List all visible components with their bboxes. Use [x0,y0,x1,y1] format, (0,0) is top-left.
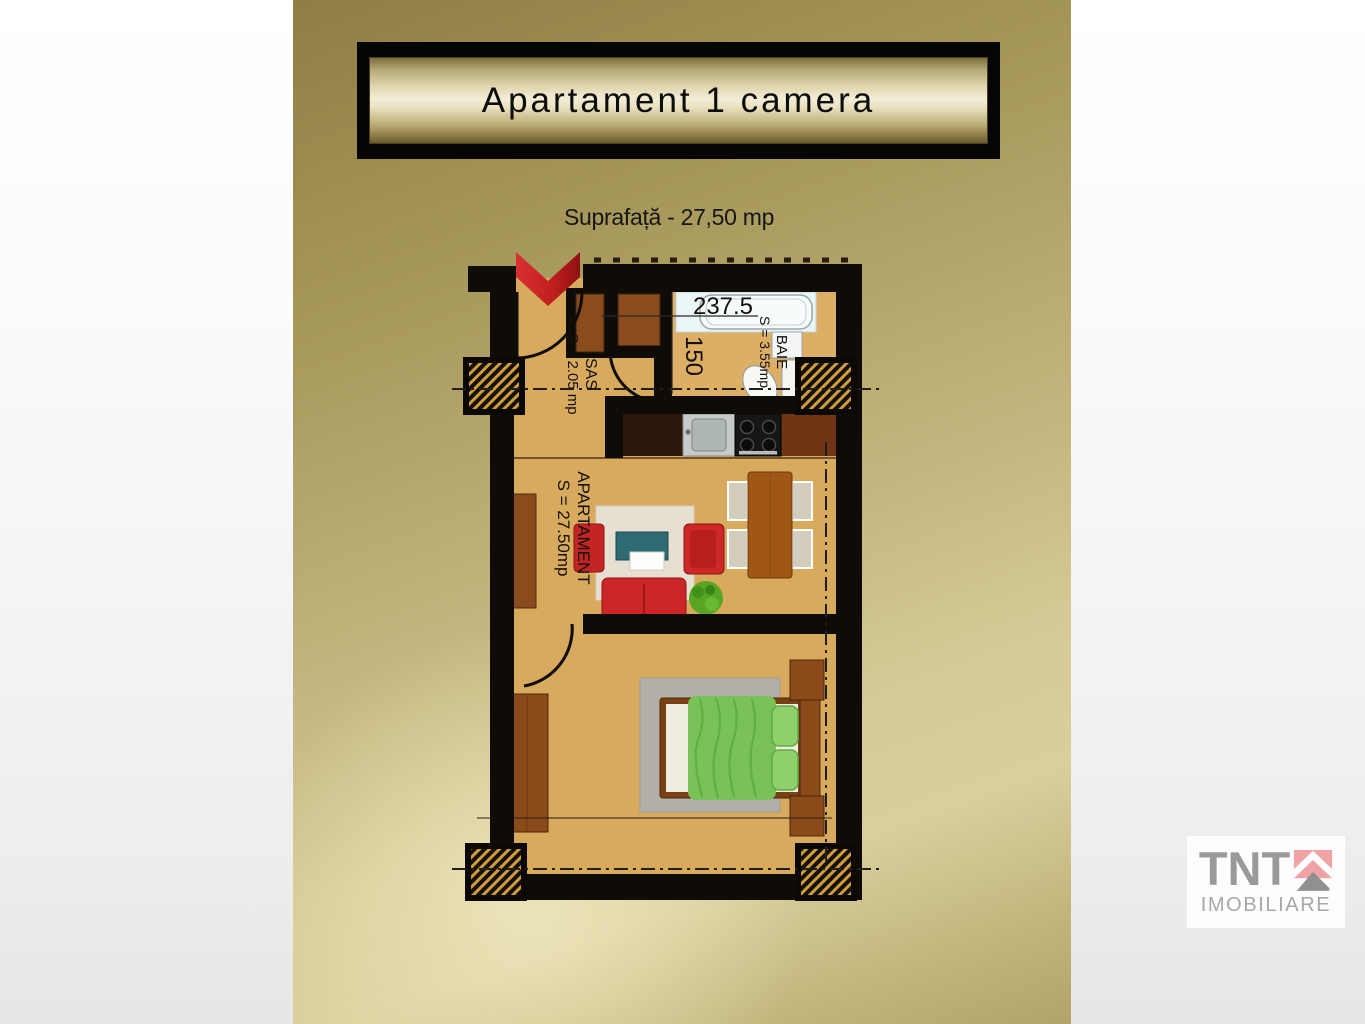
pillow [772,706,798,746]
room-area-baie: S = 3.55mp [757,316,773,388]
logo-tagline-text: IMOBILIARE [1201,894,1331,917]
agency-logo: TNT IMOBILIARE [1187,836,1345,928]
dimension-width-label: 237.5 [693,293,753,320]
surface-area-subtitle: Suprafață - 27,50 mp [564,204,774,231]
kitchen-sink [683,414,735,456]
plant [689,581,723,615]
floorplan: 237.5 150 SAS S = 2.05 mp BAIE S = 3.55m… [450,245,884,913]
pillow [772,750,798,790]
flyer-page: Apartament 1 camera Suprafață - 27,50 mp [0,0,1365,1024]
bed [660,696,804,800]
sas-closets [576,294,660,352]
dimension-depth-label: 150 [680,336,707,376]
room-label-sas: SAS [582,358,599,390]
room-label-baie: BAIE [773,335,790,369]
page-title: Apartament 1 camera [482,81,876,121]
tnt-house-icon [1293,848,1333,892]
logo-brand-text: TNT [1199,848,1290,890]
room-label-apartament: APARTAMENT [574,471,593,584]
title-banner: Apartament 1 camera [357,42,1000,159]
room-area-apartament: S = 27.50mp [554,480,573,577]
stove [735,414,781,456]
title-banner-plate: Apartament 1 camera [369,57,988,144]
room-area-sas: S = 2.05 mp [564,333,581,414]
